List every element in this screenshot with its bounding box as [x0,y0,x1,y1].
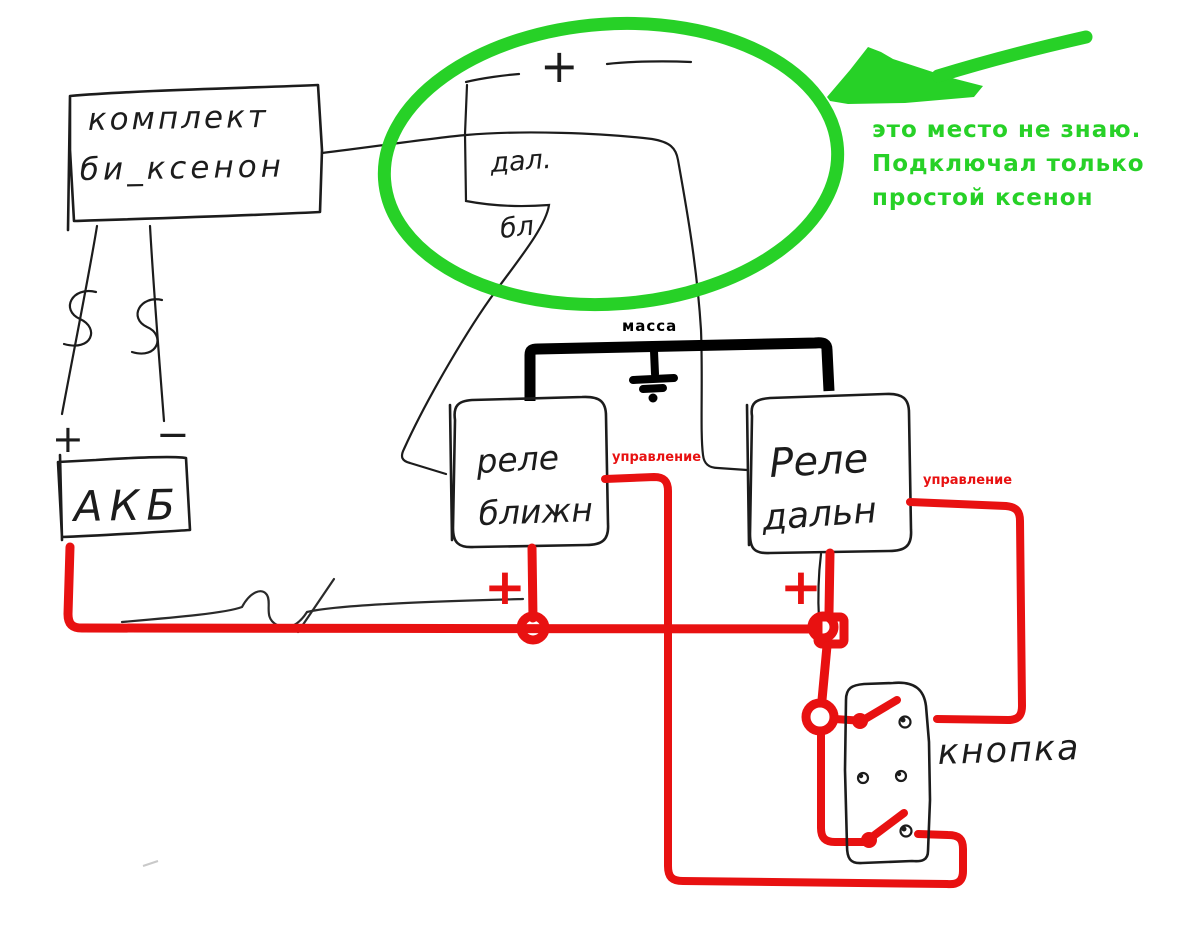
wire-low-beam-label: бл [498,211,535,245]
ground-tap [654,351,655,374]
power-plus-left: + [484,558,526,616]
diagram-svg: комплект би_ксенон + − АКБ + дал. бл это… [0,0,1200,935]
wiring-diagram: комплект би_ксенон + − АКБ + дал. бл это… [0,0,1200,935]
bulb-plus-sign: + [540,39,579,93]
power-plus-right: + [780,558,822,616]
note-line3: простой ксенон [872,185,1093,211]
unknown-area-circle [375,9,847,320]
battery-label: АКБ [70,480,182,531]
switch-contact-bottom [901,826,912,837]
arrow-tail [938,37,1086,76]
relay-high-line2: дальн [760,490,878,539]
ground-symbol-dot [649,394,658,403]
relay-high-power-drop [829,553,830,612]
switch-contact-mid-right-dot [897,772,901,776]
switch-lever-bottom [868,813,904,840]
switch-contact-top-dot [901,718,906,723]
relay-high-line1: Реле [768,436,869,487]
control-wire-left [605,477,963,884]
stray-mark [143,861,158,866]
control-wire-right [910,502,1022,720]
kit-battery-wire-minus [150,226,164,421]
ground-label: масса [622,317,677,335]
control-left-label: управление [612,450,701,465]
ground-bus [530,343,829,401]
switch-lever-top [860,700,897,722]
note-line1: это место не знаю. [872,117,1141,143]
battery-plus-sign: + [52,417,84,461]
kit-battery-wire-plus [62,226,97,414]
bulb-terminal-dash-left [466,74,519,82]
switch-feed-ring [806,703,834,731]
fuse-symbol-left [64,291,96,346]
switch-contact-top [900,717,911,728]
relay-low-line2: ближн [478,490,593,533]
switch-contact-mid-left-dot [859,774,863,778]
ground-symbol-bar1 [633,378,674,380]
note-line2: Подключал только [872,151,1145,177]
ground-symbol-bar2 [643,388,663,389]
kit-label-line2: би_ксенон [80,148,286,188]
bulb-terminal-dash-right [607,61,691,64]
relay-low-line1: реле [474,438,560,481]
relay-low-power-drop [532,548,533,618]
wire-high-beam-label: дал. [488,144,552,179]
control-right-label: управление [923,473,1012,488]
switch-label: кнопка [937,728,1081,773]
switch-contact-bottom-dot [902,827,907,832]
battery-minus-sign: − [156,412,190,458]
switch-feed-drop [822,646,827,700]
kit-label-line1: комплект [88,99,270,138]
